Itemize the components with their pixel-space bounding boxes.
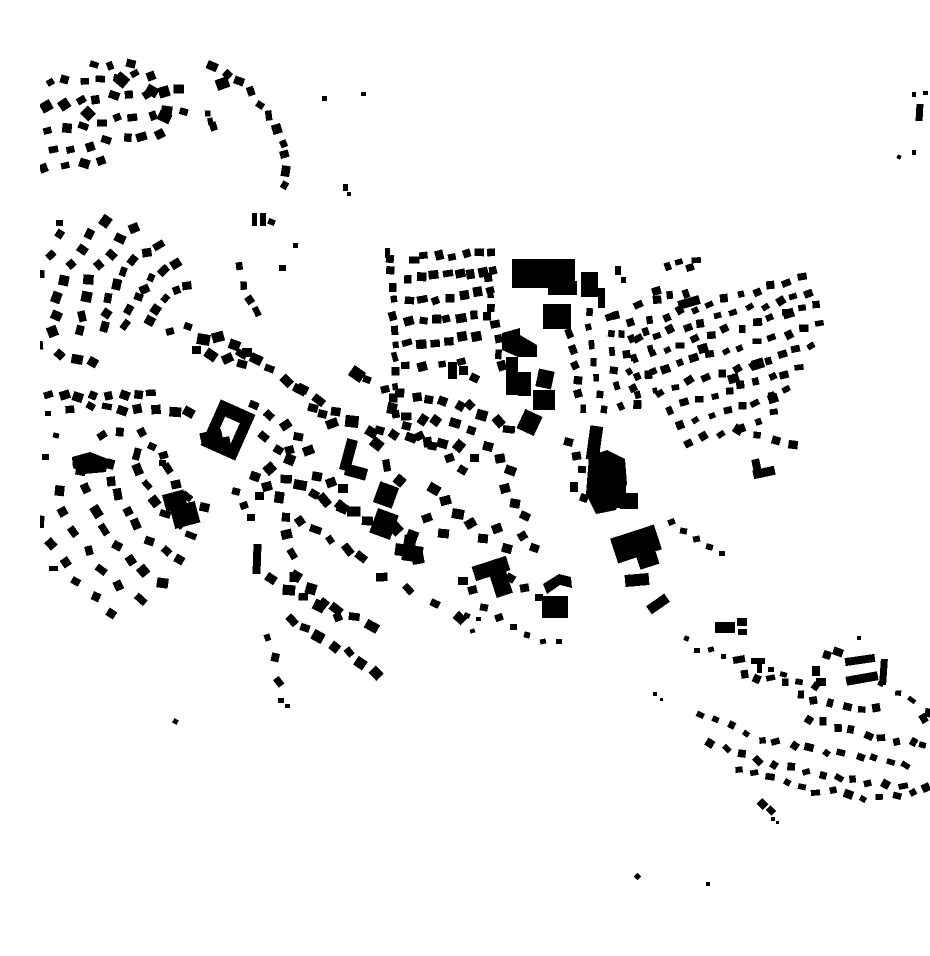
building — [126, 254, 139, 267]
building — [456, 357, 466, 366]
building — [273, 444, 285, 455]
building — [151, 405, 161, 415]
building — [847, 725, 855, 734]
building — [711, 393, 719, 400]
building — [660, 698, 663, 701]
building — [671, 384, 679, 391]
building — [663, 262, 672, 272]
building — [738, 629, 747, 635]
building — [46, 325, 59, 339]
building-polygon — [543, 574, 572, 594]
building — [633, 372, 642, 381]
building — [293, 243, 298, 248]
building — [843, 789, 855, 800]
building — [52, 432, 59, 438]
building — [766, 674, 776, 681]
building — [309, 524, 323, 535]
building — [467, 585, 478, 595]
building — [278, 698, 284, 703]
building — [317, 409, 328, 419]
building — [877, 734, 886, 741]
building — [570, 482, 578, 492]
building — [170, 479, 181, 489]
building — [804, 742, 815, 752]
building — [448, 417, 461, 429]
building — [459, 290, 470, 301]
building — [519, 583, 529, 592]
building — [343, 646, 354, 658]
building — [279, 374, 294, 389]
building — [688, 353, 699, 363]
building — [753, 431, 761, 438]
building — [50, 309, 63, 322]
building — [239, 501, 249, 510]
building — [265, 110, 273, 121]
building — [429, 598, 441, 609]
building — [252, 544, 261, 574]
building — [753, 318, 763, 326]
building — [509, 498, 520, 509]
building — [898, 782, 908, 790]
building — [664, 324, 675, 335]
building — [119, 319, 131, 331]
building — [920, 782, 930, 793]
building — [106, 61, 115, 71]
building — [369, 436, 385, 452]
building — [768, 667, 774, 672]
building — [416, 295, 428, 304]
building — [427, 441, 437, 450]
building — [169, 257, 183, 270]
building — [494, 453, 505, 464]
building — [392, 367, 400, 375]
building — [869, 753, 878, 762]
building — [662, 313, 672, 323]
building — [769, 408, 778, 415]
building — [282, 585, 295, 596]
building — [263, 409, 275, 421]
building — [279, 139, 288, 148]
building — [845, 654, 876, 666]
building — [81, 78, 89, 85]
building — [172, 718, 179, 725]
building — [302, 444, 315, 456]
building — [494, 334, 503, 344]
building — [719, 323, 730, 333]
building — [345, 415, 360, 428]
building — [441, 314, 450, 323]
building — [765, 313, 774, 322]
building — [707, 331, 716, 339]
building — [134, 390, 144, 399]
building — [389, 283, 397, 292]
building — [766, 333, 776, 342]
building — [616, 402, 625, 412]
building — [119, 266, 128, 277]
building — [754, 418, 762, 426]
building — [863, 731, 874, 741]
building — [271, 123, 283, 135]
building — [463, 517, 477, 530]
building — [455, 268, 467, 278]
building — [401, 362, 410, 369]
building — [479, 603, 488, 611]
building — [361, 92, 366, 96]
building — [879, 659, 888, 685]
building — [183, 322, 193, 331]
building — [382, 459, 391, 472]
building — [501, 543, 513, 554]
building — [632, 333, 644, 344]
building — [518, 372, 531, 396]
building — [199, 502, 210, 513]
building — [260, 213, 266, 226]
building — [633, 400, 641, 409]
building — [119, 389, 131, 401]
building — [54, 485, 65, 496]
building — [752, 674, 762, 685]
building — [65, 405, 74, 413]
building — [466, 269, 476, 280]
building — [728, 309, 738, 317]
building — [444, 337, 454, 346]
building — [146, 273, 155, 283]
building — [727, 720, 736, 730]
building — [487, 288, 494, 299]
building — [391, 326, 398, 336]
building — [474, 248, 484, 256]
building — [124, 554, 137, 567]
building — [387, 428, 400, 440]
building — [737, 290, 745, 298]
building — [580, 404, 586, 413]
building — [454, 400, 466, 412]
building — [328, 641, 341, 654]
building — [880, 779, 891, 790]
building-footprint-canvas — [40, 16, 930, 940]
building — [419, 317, 428, 325]
building — [563, 437, 574, 447]
building — [78, 157, 91, 169]
building — [533, 390, 555, 410]
building — [131, 463, 144, 477]
building — [184, 530, 197, 540]
building — [707, 646, 714, 652]
building — [49, 566, 58, 571]
building — [156, 577, 169, 589]
building — [373, 481, 399, 509]
building — [578, 466, 587, 474]
building — [761, 303, 770, 312]
building — [273, 676, 284, 688]
building — [770, 737, 780, 746]
building — [388, 311, 398, 322]
building — [667, 518, 676, 526]
building — [242, 348, 252, 357]
building — [812, 301, 820, 309]
building — [40, 515, 45, 528]
building — [620, 493, 638, 509]
building — [50, 291, 63, 305]
building — [122, 506, 133, 517]
building — [806, 341, 815, 350]
building — [586, 308, 593, 317]
building — [255, 492, 264, 500]
building — [700, 373, 711, 383]
building — [80, 291, 92, 303]
building — [392, 341, 399, 348]
building — [40, 99, 54, 114]
building — [651, 286, 662, 296]
building — [625, 573, 650, 587]
building — [815, 320, 825, 327]
building — [803, 289, 814, 299]
building — [863, 779, 872, 787]
building — [598, 288, 605, 308]
building — [434, 249, 444, 260]
building — [444, 453, 455, 464]
building — [111, 540, 123, 552]
building — [135, 131, 148, 142]
building — [790, 345, 800, 354]
building — [698, 430, 709, 441]
building — [43, 390, 54, 399]
building — [573, 389, 583, 399]
building — [246, 86, 256, 97]
building — [540, 639, 547, 645]
building — [401, 412, 412, 420]
building — [236, 359, 248, 369]
building — [715, 622, 735, 633]
building — [809, 696, 818, 705]
building — [886, 758, 895, 766]
building — [892, 792, 902, 800]
building — [857, 636, 861, 640]
building — [529, 543, 540, 554]
building — [535, 594, 543, 601]
building — [182, 281, 192, 290]
building — [98, 214, 113, 229]
building — [795, 678, 803, 685]
building — [419, 252, 428, 260]
building — [464, 399, 476, 411]
building — [908, 788, 917, 797]
building — [721, 654, 726, 659]
building — [706, 882, 710, 886]
building — [45, 249, 57, 261]
building — [104, 391, 114, 401]
building — [172, 285, 182, 295]
building — [116, 405, 129, 417]
building — [59, 74, 69, 84]
building — [842, 702, 852, 711]
building — [506, 357, 518, 395]
building — [263, 633, 271, 641]
building — [76, 243, 89, 256]
building — [148, 110, 158, 121]
building — [160, 293, 170, 303]
building — [280, 180, 290, 190]
building — [535, 369, 554, 390]
building — [404, 275, 412, 284]
building — [448, 362, 457, 379]
building — [542, 596, 568, 618]
building — [764, 357, 772, 366]
building — [95, 75, 105, 82]
building — [364, 619, 380, 634]
building — [142, 479, 153, 490]
building — [490, 319, 501, 328]
building — [80, 105, 96, 121]
building — [726, 387, 734, 395]
building — [111, 278, 122, 291]
building — [690, 334, 700, 344]
building — [211, 331, 225, 344]
building — [147, 494, 161, 508]
building — [84, 228, 96, 241]
building — [856, 752, 866, 761]
building — [97, 119, 107, 126]
building — [653, 692, 657, 696]
building — [753, 338, 762, 344]
figure-ground-map — [40, 16, 930, 940]
building — [85, 141, 96, 152]
building — [62, 123, 73, 133]
building — [45, 411, 51, 416]
building — [812, 666, 820, 676]
building — [621, 277, 626, 283]
building — [752, 755, 764, 767]
building — [124, 133, 132, 142]
building — [452, 439, 467, 454]
building — [368, 665, 383, 680]
building — [429, 414, 442, 427]
building — [233, 76, 245, 87]
building — [252, 306, 262, 317]
building — [57, 97, 72, 112]
building — [48, 145, 59, 153]
building — [158, 451, 169, 460]
building — [653, 295, 662, 304]
building — [428, 270, 439, 280]
building — [790, 740, 801, 751]
building — [328, 602, 344, 617]
building — [745, 302, 754, 311]
building — [353, 656, 368, 671]
building — [173, 553, 185, 565]
building — [484, 272, 493, 282]
building — [896, 154, 901, 159]
building — [132, 404, 143, 415]
building — [362, 516, 374, 525]
building — [205, 110, 211, 116]
building — [646, 594, 670, 615]
building — [782, 679, 788, 686]
building — [470, 310, 478, 319]
building — [261, 481, 273, 492]
building — [347, 506, 361, 516]
building — [54, 228, 65, 239]
building — [822, 650, 832, 660]
building — [390, 295, 397, 303]
building — [354, 550, 368, 563]
building — [466, 425, 477, 435]
building — [476, 617, 481, 621]
building — [732, 655, 745, 664]
building — [608, 330, 615, 338]
building — [478, 534, 489, 544]
building — [469, 372, 481, 383]
building — [836, 748, 846, 756]
building — [293, 432, 304, 442]
building — [739, 402, 747, 409]
building — [88, 390, 99, 401]
building — [487, 304, 495, 312]
building — [203, 347, 219, 362]
building — [325, 477, 337, 489]
building — [221, 352, 235, 365]
building — [613, 381, 621, 391]
building — [829, 786, 837, 794]
building — [682, 289, 691, 299]
building — [279, 418, 293, 431]
building — [679, 397, 690, 407]
building — [556, 639, 562, 644]
building — [264, 364, 276, 374]
building — [405, 296, 415, 304]
building — [112, 113, 122, 122]
building — [282, 513, 291, 522]
building — [91, 95, 101, 105]
building — [675, 420, 685, 431]
building — [766, 805, 777, 816]
building — [666, 291, 673, 300]
building — [99, 321, 110, 334]
building — [91, 591, 102, 602]
building — [663, 346, 672, 354]
building — [634, 873, 641, 880]
building — [609, 366, 618, 374]
building — [438, 361, 446, 368]
building — [143, 314, 156, 327]
building — [719, 294, 728, 303]
building — [130, 517, 142, 530]
building — [285, 613, 299, 627]
building — [236, 262, 244, 271]
building — [96, 430, 108, 441]
building — [40, 163, 49, 174]
building — [769, 760, 779, 770]
building — [788, 293, 797, 301]
building — [77, 121, 89, 131]
building — [100, 135, 112, 145]
building — [665, 406, 674, 416]
building — [674, 258, 683, 265]
building — [832, 647, 844, 658]
building — [56, 506, 68, 518]
building — [386, 266, 395, 275]
building — [496, 360, 507, 372]
building — [593, 374, 599, 382]
building — [257, 430, 270, 443]
building — [768, 372, 777, 381]
building — [442, 269, 453, 277]
building — [439, 495, 452, 507]
building — [53, 348, 66, 360]
building — [685, 263, 695, 272]
building — [713, 312, 722, 320]
building — [376, 573, 388, 582]
